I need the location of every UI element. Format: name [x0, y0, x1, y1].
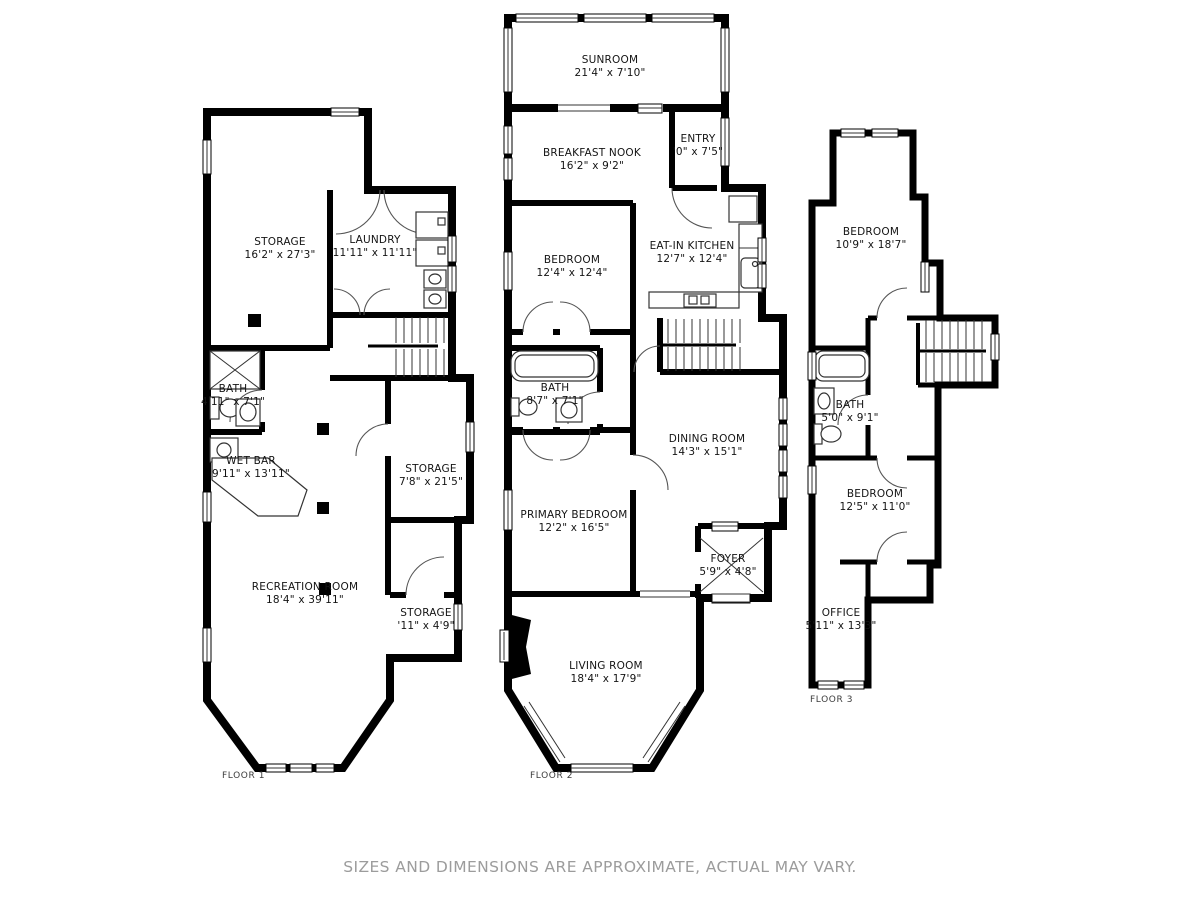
room-label-f2-foyer: FOYER5'9" x 4'8"	[699, 553, 756, 578]
floor-3-tag: FLOOR 3	[810, 695, 853, 705]
room-label-f3-bath: BATH5'0" x 9'1"	[821, 399, 878, 424]
room-label-f1-bath: BATH4'11" x 7'1"	[201, 383, 265, 408]
room-label-f2-bath: BATH8'7" x 7'1"	[526, 382, 583, 407]
floor-plan-image: STORAGE16'2" x 27'3" LAUNDRY11'11" x 11'…	[0, 0, 1200, 900]
room-labels-layer: STORAGE16'2" x 27'3" LAUNDRY11'11" x 11'…	[0, 0, 1200, 900]
room-label-f2-sunroom: SUNROOM21'4" x 7'10"	[574, 54, 645, 79]
floor-1-tag: FLOOR 1	[222, 771, 265, 781]
room-label-f3-bedroom-a: BEDROOM10'9" x 18'7"	[835, 226, 906, 251]
room-label-f3-bedroom-b: BEDROOM12'5" x 11'0"	[839, 488, 910, 513]
disclaimer-text: SIZES AND DIMENSIONS ARE APPROXIMATE, AC…	[0, 858, 1200, 876]
room-label-f3-office: OFFICE5'11" x 13'3"	[805, 607, 876, 632]
room-label-f2-primary-bedroom: PRIMARY BEDROOM12'2" x 16'5"	[520, 509, 627, 534]
room-label-f1-storage-a: STORAGE16'2" x 27'3"	[244, 236, 315, 261]
room-label-f1-recreation-room: RECREATION ROOM18'4" x 39'11"	[252, 581, 358, 606]
room-label-f2-breakfast-nook: BREAKFAST NOOK16'2" x 9'2"	[543, 147, 641, 172]
room-label-f2-eat-in-kitchen: EAT-IN KITCHEN12'7" x 12'4"	[650, 240, 735, 265]
room-label-f2-entry: ENTRY'0" x 7'5"	[673, 133, 723, 158]
room-label-f2-bedroom: BEDROOM12'4" x 12'4"	[536, 254, 607, 279]
room-label-f2-dining-room: DINING ROOM14'3" x 15'1"	[669, 433, 746, 458]
room-label-f1-storage-b: STORAGE7'8" x 21'5"	[399, 463, 463, 488]
room-label-f1-storage-c: STORAGE'11" x 4'9"	[397, 607, 454, 632]
room-label-f1-laundry: LAUNDRY11'11" x 11'11"	[333, 234, 418, 259]
room-label-f1-wet-bar: WET BAR9'11" x 13'11"	[212, 455, 290, 480]
room-label-f2-living-room: LIVING ROOM18'4" x 17'9"	[569, 660, 643, 685]
floor-2-tag: FLOOR 2	[530, 771, 573, 781]
